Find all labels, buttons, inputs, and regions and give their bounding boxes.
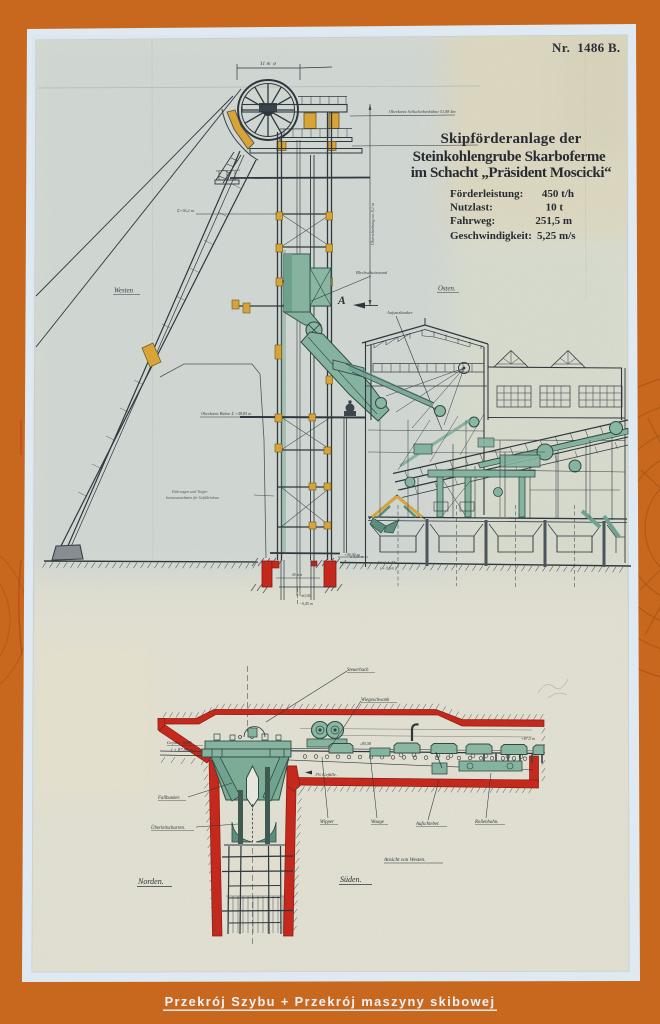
svg-text:Blechschutzwand: Blechschutzwand (356, 270, 388, 275)
svg-text:Nutzlast:: Nutzlast: (450, 202, 493, 214)
svg-text:Przekrój Szybu + Przekrój masz: Przekrój Szybu + Przekrój maszyny skibow… (165, 994, 496, 1009)
svg-text:1 = 45 m: 1 = 45 m (458, 140, 473, 145)
svg-text:Förderleistung:: Förderleistung: (450, 188, 523, 200)
svg-text:Fahrweg:: Fahrweg: (450, 215, 495, 227)
svg-text:Führungen und Träger: Führungen und Träger (171, 490, 208, 494)
svg-text:Steinkohlengrube Skarboferme: Steinkohlengrube Skarboferme (413, 149, 606, 165)
svg-text:Steuerbach: Steuerbach (347, 668, 369, 673)
svg-text:Geschwindigkeit:: Geschwindigkeit: (450, 230, 532, 242)
svg-text:Aufsatzbunker: Aufsatzbunker (386, 310, 413, 315)
svg-text:Wiegeschwank: Wiegeschwank (361, 698, 390, 703)
svg-text:Nr. 1486 B.: Nr. 1486 B. (552, 40, 621, 55)
svg-text:Wipper: Wipper (320, 820, 334, 825)
svg-text:450 t/h: 450 t/h (542, 188, 574, 200)
svg-text:Osten.: Osten. (438, 286, 456, 293)
svg-text:Fallbunker.: Fallbunker. (157, 796, 180, 801)
svg-text:40 m ø: 40 m ø (292, 573, 302, 577)
svg-text:Norden.: Norden. (137, 877, 164, 886)
svg-text:Aufschieber.: Aufschieber. (415, 822, 440, 827)
svg-text:A: A (337, 295, 346, 307)
svg-text:5,25 m/s: 5,25 m/s (537, 230, 576, 242)
svg-text:Rollenbahn.: Rollenbahn. (474, 820, 498, 825)
svg-text:1% Gefälle.: 1% Gefälle. (315, 772, 337, 777)
svg-text:10 t: 10 t (546, 202, 564, 214)
svg-text:im Schacht „Präsident Moscicki: im Schacht „Präsident Moscicki“ (411, 165, 612, 181)
svg-text:Süden.: Süden. (340, 875, 362, 884)
svg-text:Ansicht von Westen.: Ansicht von Westen. (383, 857, 425, 863)
svg-text:Westen: Westen (114, 288, 134, 295)
svg-text:251,5 m: 251,5 m (535, 215, 572, 227)
svg-text:Waage: Waage (371, 820, 385, 825)
svg-text:11 m ø: 11 m ø (260, 61, 276, 67)
svg-text:Überleitschurren.: Überleitschurren. (151, 825, 185, 831)
svg-text:Fl. Geb. 54a: Fl. Geb. 54a (377, 561, 397, 565)
svg-text:herauszunehmen für Gefäßeinbau: herauszunehmen für Gefäßeinbau (166, 496, 219, 500)
